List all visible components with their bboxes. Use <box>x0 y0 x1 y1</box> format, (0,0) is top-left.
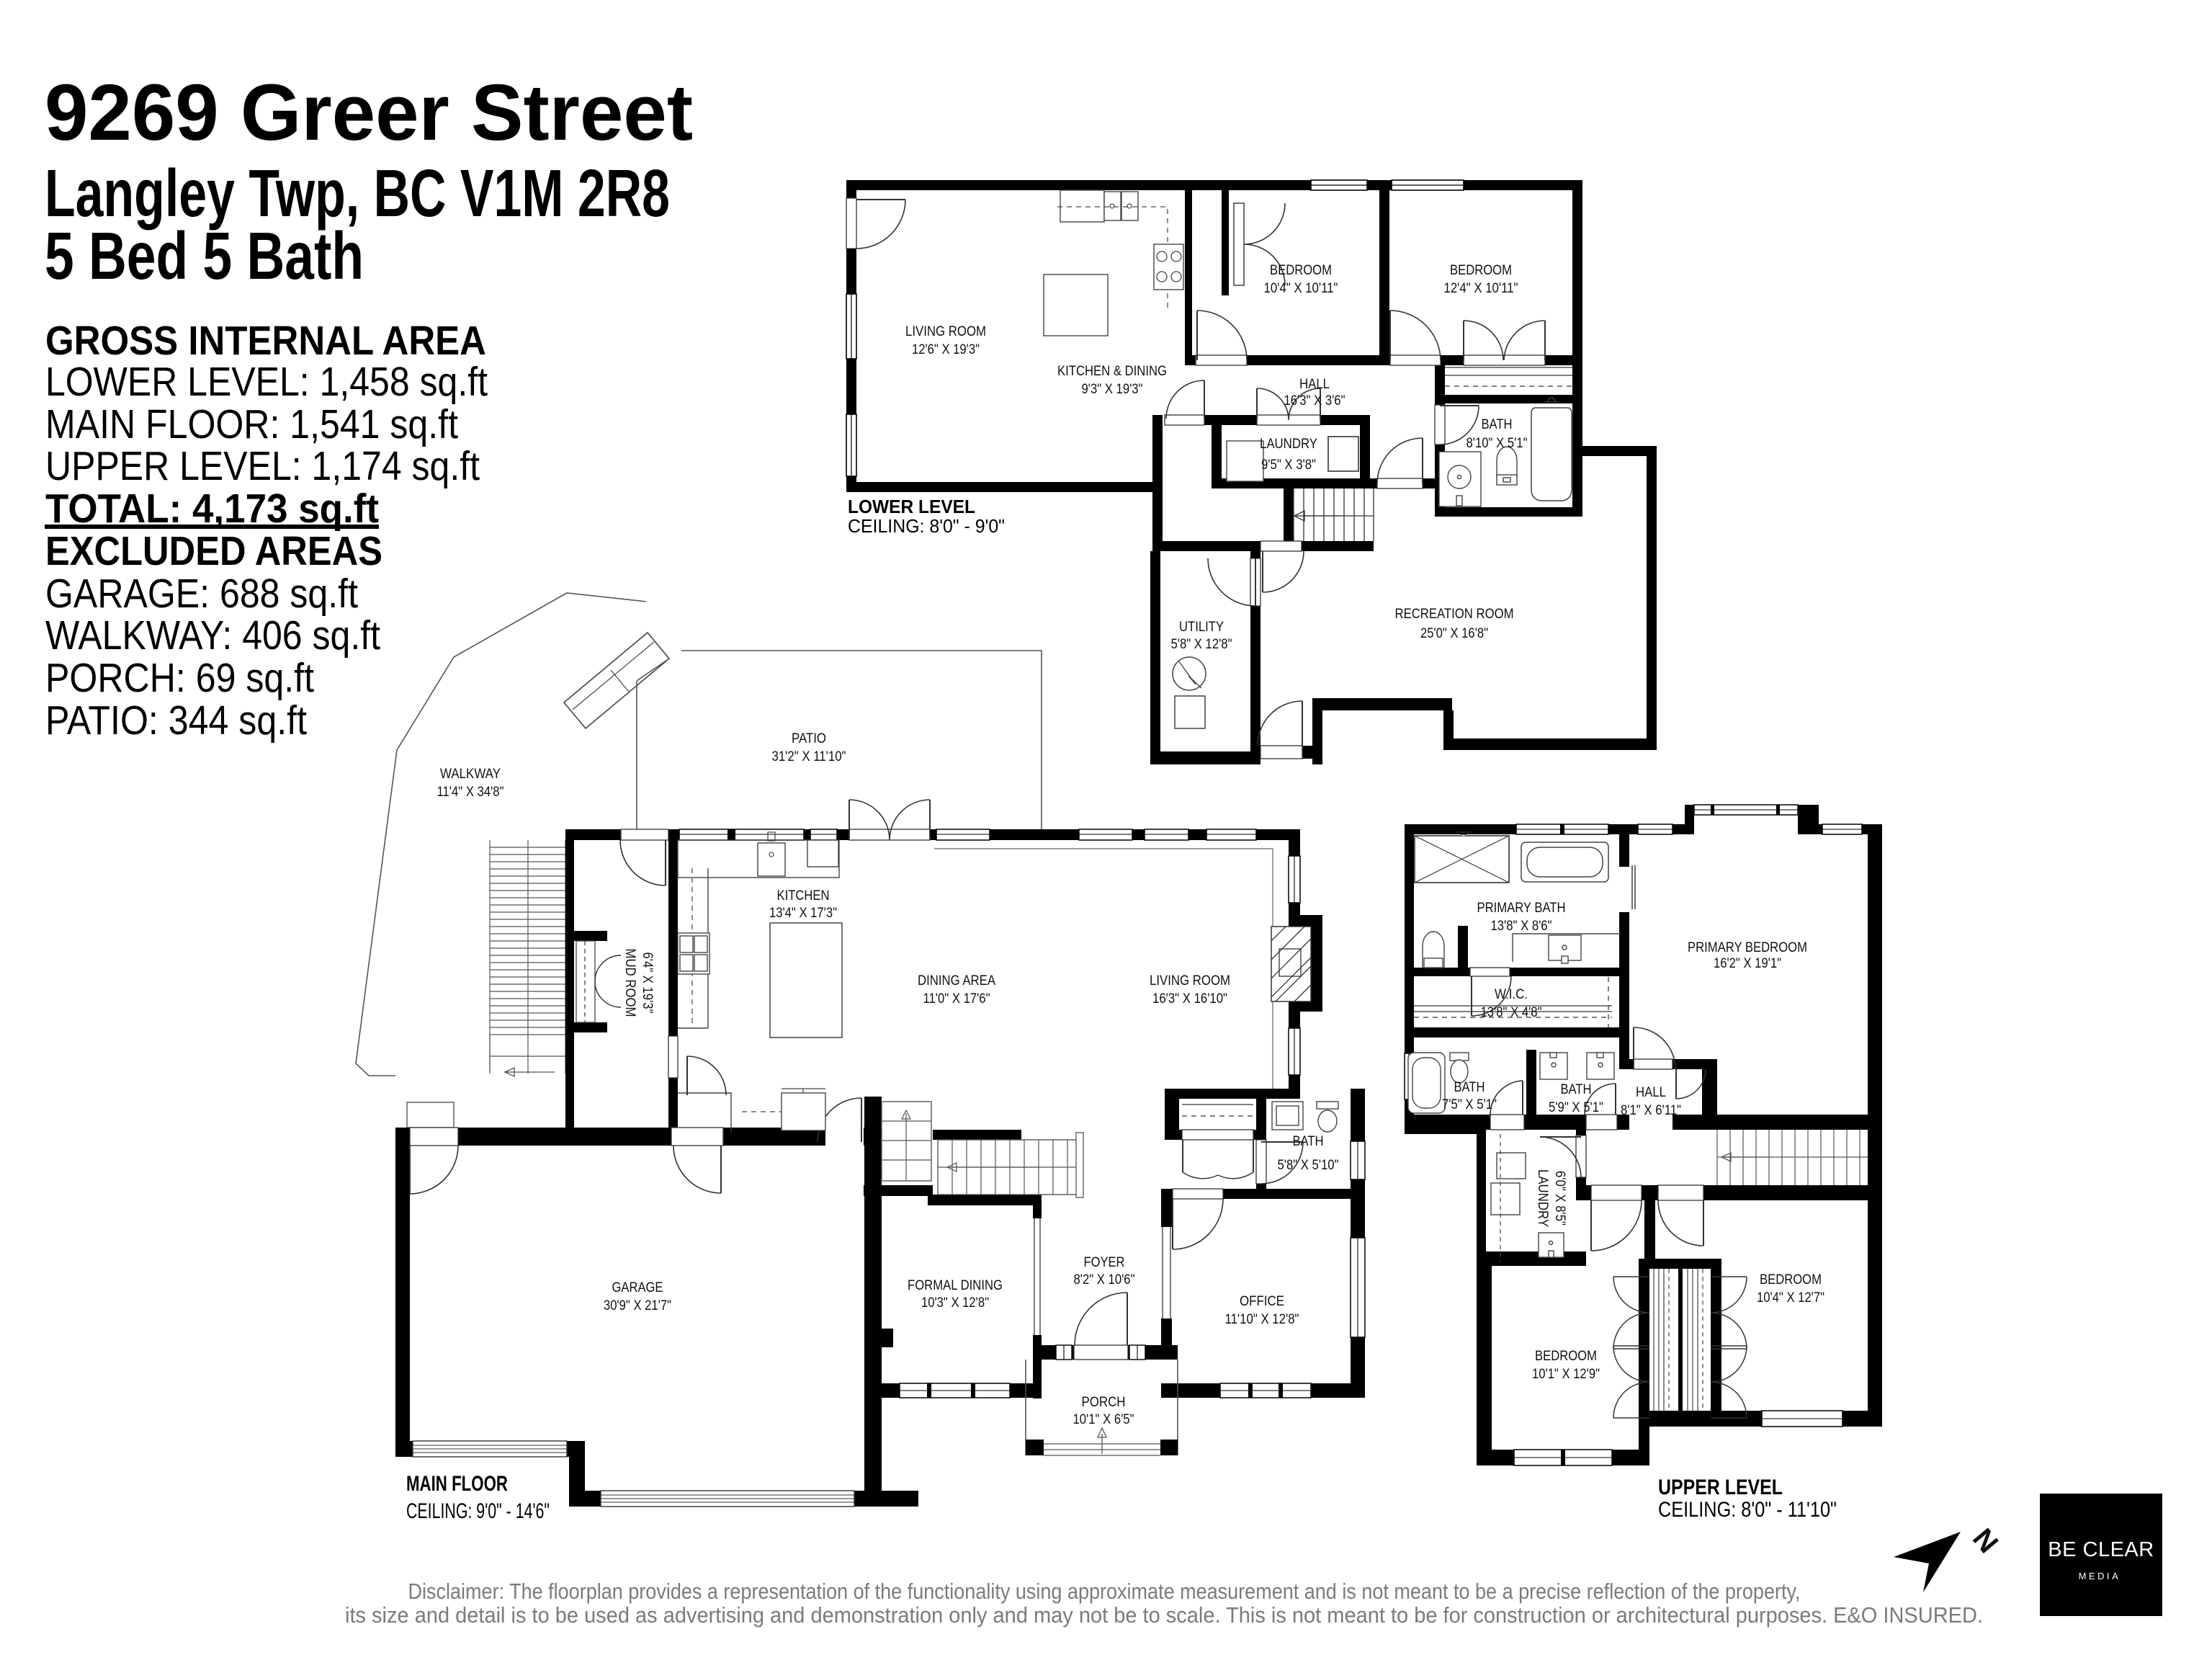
svg-text:BATH: BATH <box>1454 1080 1485 1095</box>
svg-text:MAIN FLOOR: MAIN FLOOR <box>406 1472 508 1496</box>
svg-text:LAUNDRY: LAUNDRY <box>1260 437 1317 452</box>
svg-text:10'4" X 10'11": 10'4" X 10'11" <box>1264 281 1338 296</box>
svg-text:UPPER LEVEL: 1,174 sq.ft: UPPER LEVEL: 1,174 sq.ft <box>45 443 480 489</box>
svg-text:BATH: BATH <box>1293 1134 1324 1149</box>
svg-text:5'9" X 5'1": 5'9" X 5'1" <box>1549 1100 1603 1115</box>
svg-text:CEILING: 8'0" - 9'0": CEILING: 8'0" - 9'0" <box>848 515 1005 537</box>
svg-text:its size and detail is to be u: its size and detail is to be used as adv… <box>345 1602 1983 1628</box>
svg-text:9269 Greer Street: 9269 Greer Street <box>45 68 693 157</box>
svg-text:LIVING ROOM: LIVING ROOM <box>1150 973 1230 989</box>
svg-text:10'4" X 12'7": 10'4" X 12'7" <box>1757 1290 1824 1306</box>
svg-text:LIVING ROOM: LIVING ROOM <box>905 324 986 339</box>
svg-text:16'3" X 16'10": 16'3" X 16'10" <box>1152 991 1227 1007</box>
svg-text:UTILITY: UTILITY <box>1179 620 1224 635</box>
svg-text:BEDROOM: BEDROOM <box>1760 1272 1822 1288</box>
svg-text:7'5" X 5'1": 7'5" X 5'1" <box>1442 1097 1497 1112</box>
svg-text:MAIN FLOOR: 1,541 sq.ft: MAIN FLOOR: 1,541 sq.ft <box>45 401 458 447</box>
svg-text:13'8" X 4'8": 13'8" X 4'8" <box>1481 1005 1542 1020</box>
svg-text:12'6" X 19'3": 12'6" X 19'3" <box>912 342 980 357</box>
svg-text:8'2" X 10'6": 8'2" X 10'6" <box>1074 1272 1135 1288</box>
svg-text:6'0" X 8'5": 6'0" X 8'5" <box>1552 1171 1567 1226</box>
svg-text:W.I.C.: W.I.C. <box>1495 987 1528 1002</box>
svg-text:GARAGE: 688 sq.ft: GARAGE: 688 sq.ft <box>45 571 358 617</box>
svg-text:12'4" X 10'11": 12'4" X 10'11" <box>1444 281 1518 296</box>
svg-text:10'1" X 12'9": 10'1" X 12'9" <box>1532 1367 1600 1382</box>
svg-text:FOYER: FOYER <box>1084 1255 1125 1270</box>
svg-text:CEILING: 8'0" - 11'10": CEILING: 8'0" - 11'10" <box>1658 1498 1837 1522</box>
svg-text:HALL: HALL <box>1636 1085 1666 1100</box>
svg-text:PRIMARY BEDROOM: PRIMARY BEDROOM <box>1688 940 1807 955</box>
svg-text:Disclaimer: The floorplan prov: Disclaimer: The floorplan provides a rep… <box>408 1579 1801 1604</box>
svg-text:FORMAL DINING: FORMAL DINING <box>908 1278 1003 1293</box>
svg-text:PATIO: PATIO <box>792 731 826 746</box>
svg-text:11'4" X 34'8": 11'4" X 34'8" <box>437 785 504 800</box>
svg-text:8'10" X 5'1": 8'10" X 5'1" <box>1467 436 1528 451</box>
svg-text:10'1" X 6'5": 10'1" X 6'5" <box>1073 1412 1134 1427</box>
svg-text:PORCH: 69 sq.ft: PORCH: 69 sq.ft <box>45 655 314 701</box>
svg-text:30'9" X 21'7": 30'9" X 21'7" <box>604 1298 671 1313</box>
svg-text:BATH: BATH <box>1482 417 1513 432</box>
svg-text:LAUNDRY: LAUNDRY <box>1535 1169 1550 1227</box>
svg-text:WALKWAY: 406 sq.ft: WALKWAY: 406 sq.ft <box>45 612 380 659</box>
svg-text:KITCHEN: KITCHEN <box>777 888 830 903</box>
svg-text:GROSS INTERNAL AREA: GROSS INTERNAL AREA <box>45 318 486 364</box>
svg-text:RECREATION ROOM: RECREATION ROOM <box>1395 607 1514 622</box>
svg-text:6'4" X 19'3": 6'4" X 19'3" <box>640 952 655 1014</box>
svg-text:LOWER LEVEL: 1,458 sq.ft: LOWER LEVEL: 1,458 sq.ft <box>45 359 488 405</box>
svg-text:WALKWAY: WALKWAY <box>440 767 501 782</box>
svg-text:CEILING: 9'0" - 14'6": CEILING: 9'0" - 14'6" <box>406 1499 550 1523</box>
svg-text:5'8" X 12'8": 5'8" X 12'8" <box>1171 637 1232 652</box>
svg-text:5 Bed 5 Bath: 5 Bed 5 Bath <box>45 218 364 293</box>
svg-text:PRIMARY BATH: PRIMARY BATH <box>1477 901 1566 916</box>
svg-text:9'3" X 19'3": 9'3" X 19'3" <box>1082 382 1143 397</box>
svg-text:MUD ROOM: MUD ROOM <box>622 949 637 1017</box>
svg-text:BE CLEAR: BE CLEAR <box>2048 1538 2154 1561</box>
svg-text:EXCLUDED AREAS: EXCLUDED AREAS <box>45 528 382 574</box>
svg-text:BEDROOM: BEDROOM <box>1535 1349 1597 1364</box>
svg-text:9'5" X 3'8": 9'5" X 3'8" <box>1261 458 1316 473</box>
svg-text:11'10" X 12'8": 11'10" X 12'8" <box>1225 1312 1299 1327</box>
svg-text:5'8" X 5'10": 5'8" X 5'10" <box>1278 1158 1339 1173</box>
svg-text:KITCHEN & DINING: KITCHEN & DINING <box>1057 364 1167 379</box>
svg-text:HALL: HALL <box>1299 377 1330 392</box>
svg-text:PATIO: 344 sq.ft: PATIO: 344 sq.ft <box>45 697 307 744</box>
svg-text:13'8" X 8'6": 13'8" X 8'6" <box>1491 919 1552 934</box>
svg-text:25'0" X 16'8": 25'0" X 16'8" <box>1420 626 1488 641</box>
svg-text:8'1" X 6'11": 8'1" X 6'11" <box>1621 1103 1681 1118</box>
svg-text:PORCH: PORCH <box>1082 1395 1126 1410</box>
svg-text:UPPER LEVEL: UPPER LEVEL <box>1658 1476 1783 1499</box>
svg-text:OFFICE: OFFICE <box>1240 1294 1284 1309</box>
svg-text:10'3" X 12'8": 10'3" X 12'8" <box>921 1295 989 1311</box>
svg-text:MEDIA: MEDIA <box>2079 1571 2121 1581</box>
svg-text:DINING AREA: DINING AREA <box>918 973 995 989</box>
svg-text:13'4" X 17'3": 13'4" X 17'3" <box>769 906 837 921</box>
svg-text:BEDROOM: BEDROOM <box>1270 263 1332 278</box>
svg-text:11'0" X 17'6": 11'0" X 17'6" <box>923 991 990 1007</box>
svg-text:16'3" X 3'6": 16'3" X 3'6" <box>1284 393 1345 409</box>
svg-text:GARAGE: GARAGE <box>612 1280 663 1295</box>
svg-text:BATH: BATH <box>1561 1082 1592 1097</box>
svg-text:LOWER LEVEL: LOWER LEVEL <box>848 496 975 517</box>
svg-text:31'2" X 11'10": 31'2" X 11'10" <box>772 749 846 764</box>
svg-text:16'2" X 19'1": 16'2" X 19'1" <box>1714 956 1781 971</box>
svg-text:BEDROOM: BEDROOM <box>1450 263 1512 278</box>
